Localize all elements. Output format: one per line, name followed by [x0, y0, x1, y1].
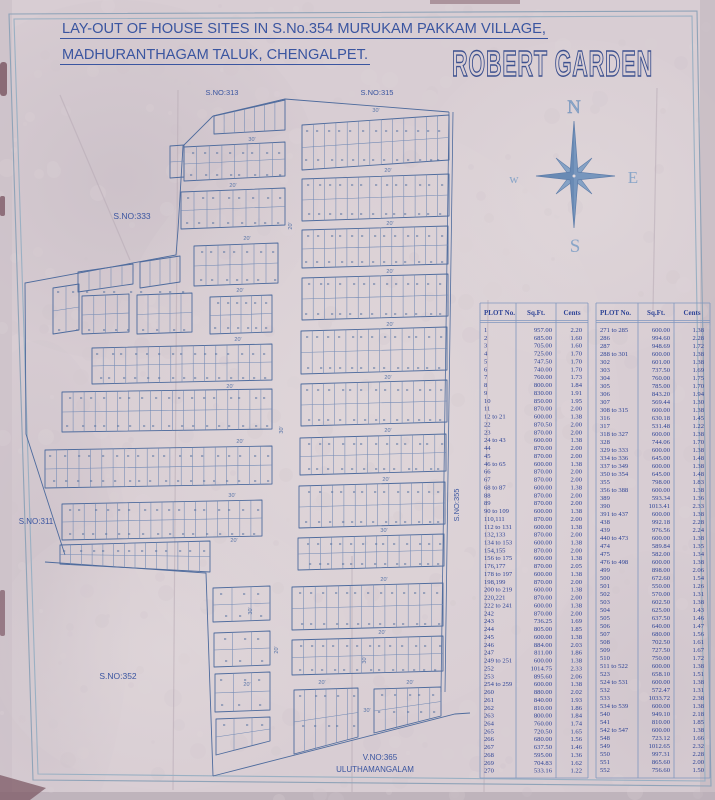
svg-text:30': 30' [362, 656, 368, 663]
svg-text:LAY-OUT OF HOUSE SITES IN S.No: LAY-OUT OF HOUSE SITES IN S.No.354 MURUK… [62, 21, 546, 37]
svg-text:w: w [509, 171, 519, 186]
svg-text:30': 30' [248, 607, 254, 614]
svg-text:20': 20' [382, 477, 389, 483]
svg-text:20': 20' [406, 680, 413, 686]
svg-text:20': 20' [230, 538, 237, 544]
svg-text:20': 20' [229, 183, 236, 189]
svg-text:20': 20' [384, 375, 391, 381]
svg-text:1.382.281.721.381.381.691.751.: 1.382.281.721.381.381.691.751.701.941.30… [692, 327, 704, 774]
svg-text:S.NO:311: S.NO:311 [19, 517, 54, 526]
svg-text:S.NO:355: S.NO:355 [452, 489, 461, 522]
svg-text:20': 20' [378, 630, 385, 636]
svg-text:Sq.Ft.: Sq.Ft. [527, 309, 545, 317]
svg-text:30': 30' [248, 137, 255, 143]
svg-text:Cents: Cents [683, 309, 700, 317]
svg-text:ROBERT GARDEN: ROBERT GARDEN [452, 43, 653, 84]
svg-text:30': 30' [380, 528, 387, 534]
svg-text:S.NO:333: S.NO:333 [113, 211, 151, 221]
svg-text:30': 30' [279, 426, 285, 433]
svg-text:2.201.601.601.701.701.701.731.: 2.201.601.601.701.701.701.731.841.911.95… [570, 327, 582, 775]
svg-text:MADHURANTHAGAM TALUK, CHENGALP: MADHURANTHAGAM TALUK, CHENGALPET. [62, 47, 368, 63]
svg-text:20': 20' [386, 269, 393, 275]
svg-text:20': 20' [236, 439, 243, 445]
svg-text:S.NO:313: S.NO:313 [206, 88, 239, 97]
svg-text:20': 20' [380, 577, 387, 583]
svg-text:20': 20' [274, 646, 280, 653]
svg-text:20': 20' [234, 337, 241, 343]
svg-text:20': 20' [318, 680, 325, 686]
svg-text:30': 30' [363, 708, 370, 714]
svg-text:N: N [567, 97, 581, 118]
svg-text:20': 20' [384, 168, 391, 174]
svg-text:20': 20' [236, 288, 243, 294]
svg-text:20': 20' [384, 428, 391, 434]
svg-text:S: S [570, 236, 581, 257]
svg-text:PLOT No.: PLOT No. [600, 309, 631, 317]
svg-text:V.NO:365: V.NO:365 [363, 753, 398, 762]
svg-text:S.NO:315: S.NO:315 [361, 88, 394, 97]
svg-text:20': 20' [243, 682, 250, 688]
svg-text:600.00994.60948.69600.00601.00: 600.00994.60948.69600.00601.00737.50760.… [649, 327, 671, 774]
svg-text:20': 20' [243, 236, 250, 242]
svg-text:E: E [628, 168, 638, 187]
svg-text:20': 20' [288, 222, 294, 229]
svg-text:20': 20' [226, 384, 233, 390]
svg-text:30': 30' [228, 493, 235, 499]
svg-text:PLOT No.: PLOT No. [484, 309, 515, 317]
svg-text:957.00685.00705.00725.00747.50: 957.00685.00705.00725.00747.50740.00760.… [531, 327, 553, 775]
svg-text:ULUTHAMANGALAM: ULUTHAMANGALAM [336, 765, 414, 774]
svg-text:30': 30' [372, 108, 379, 114]
svg-text:Cents: Cents [563, 309, 580, 317]
svg-text:20': 20' [386, 322, 393, 328]
svg-text:20': 20' [386, 221, 393, 227]
svg-text:S.NO:352: S.NO:352 [99, 671, 137, 681]
svg-text:Sq.Ft.: Sq.Ft. [647, 309, 665, 317]
